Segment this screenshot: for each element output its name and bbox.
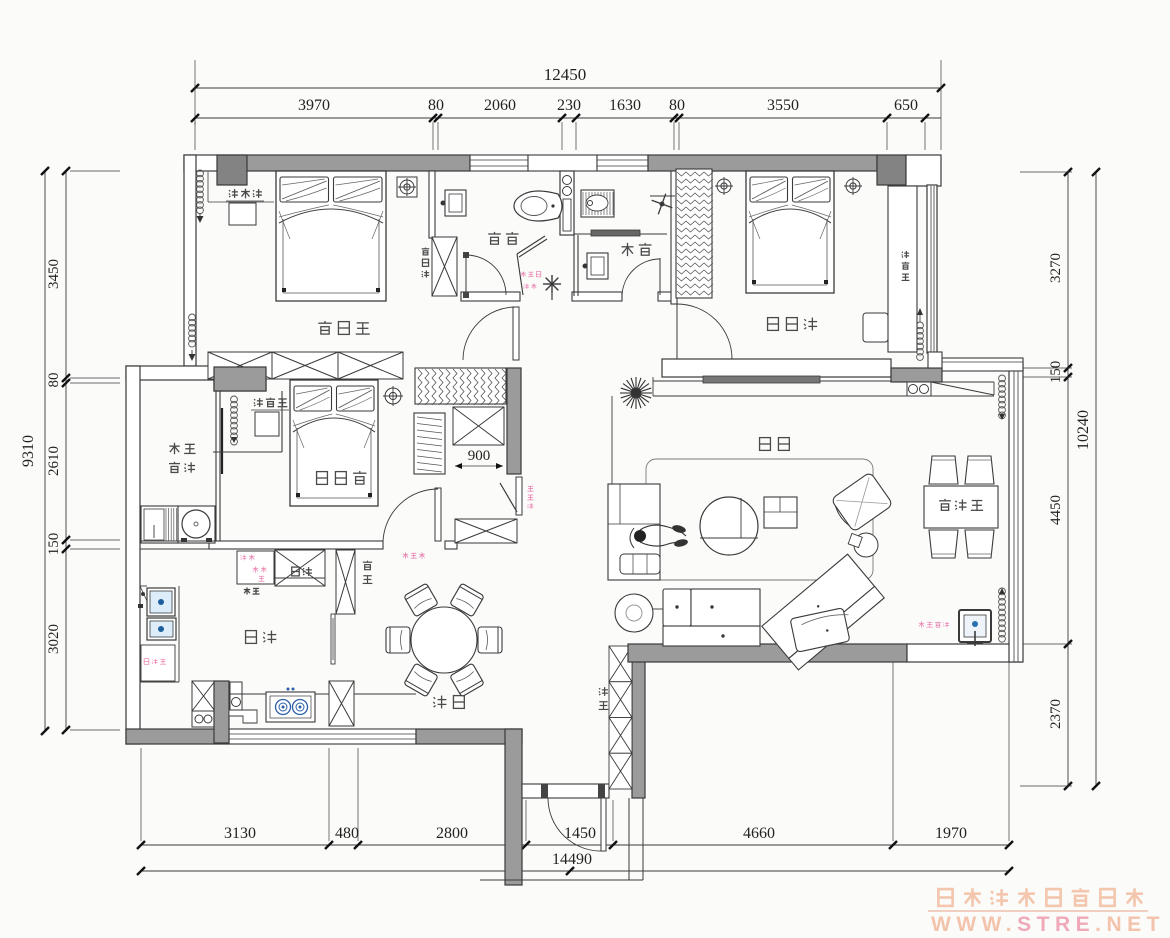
svg-text:150: 150 [46, 533, 62, 556]
svg-text:2370: 2370 [1048, 699, 1064, 729]
svg-text:3550: 3550 [767, 97, 799, 114]
svg-text:230: 230 [557, 97, 581, 114]
svg-text:4450: 4450 [1048, 495, 1064, 525]
svg-text:3270: 3270 [1048, 253, 1064, 283]
svg-text:150: 150 [1048, 361, 1064, 384]
svg-text:1970: 1970 [935, 825, 967, 842]
svg-text:2800: 2800 [436, 825, 468, 842]
svg-text:80: 80 [669, 97, 685, 114]
svg-text:1630: 1630 [609, 97, 641, 114]
svg-text:2610: 2610 [46, 446, 62, 476]
svg-text:80: 80 [428, 97, 444, 114]
svg-text:10240: 10240 [1075, 410, 1092, 450]
svg-text:12450: 12450 [544, 65, 587, 84]
svg-text:3970: 3970 [298, 97, 330, 114]
svg-text:900: 900 [468, 448, 491, 464]
svg-text:3450: 3450 [46, 259, 62, 289]
svg-text:2060: 2060 [484, 97, 516, 114]
svg-text:3130: 3130 [224, 825, 256, 842]
svg-text:4660: 4660 [743, 825, 775, 842]
svg-text:9310: 9310 [20, 435, 37, 467]
svg-text:80: 80 [46, 373, 62, 388]
svg-text:1450: 1450 [564, 825, 596, 842]
svg-text:3020: 3020 [46, 624, 62, 654]
svg-text:14490: 14490 [552, 851, 592, 868]
svg-text:480: 480 [335, 825, 359, 842]
svg-text:WWW.STRE.NET: WWW.STRE.NET [931, 913, 1165, 936]
svg-text:650: 650 [894, 97, 918, 114]
